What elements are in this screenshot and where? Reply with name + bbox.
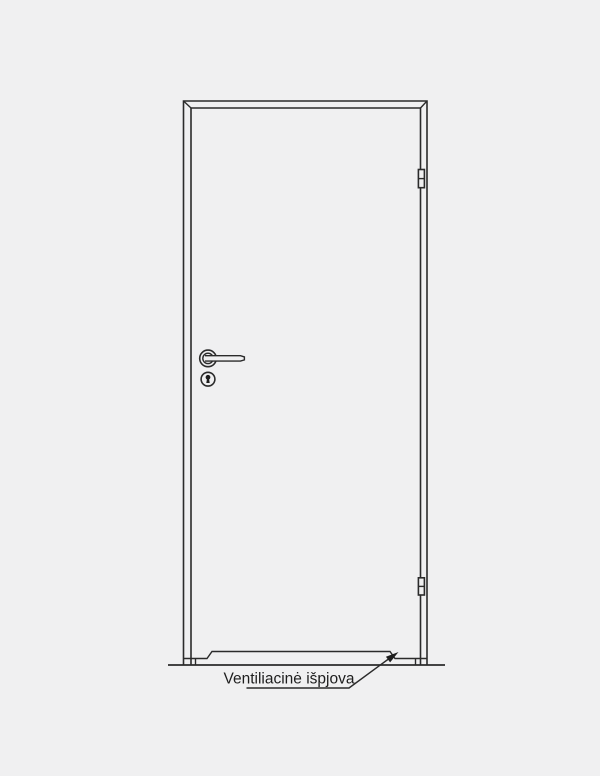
door-frame-inner-line bbox=[191, 108, 421, 665]
door-diagram-svg: Ventiliacinė išpjova bbox=[0, 0, 600, 776]
ventilation-cutout-label: Ventiliacinė išpjova bbox=[224, 671, 355, 688]
top-hinge bbox=[418, 170, 424, 188]
keyhole-stem bbox=[206, 379, 209, 383]
door-frame bbox=[184, 101, 428, 665]
handle-bar-fill bbox=[205, 356, 244, 361]
miter-top-right bbox=[421, 101, 428, 108]
keyhole-escutcheon bbox=[201, 372, 215, 386]
lever-handle bbox=[200, 350, 245, 367]
door-frame-outer-line bbox=[184, 101, 428, 665]
bottom-hinge bbox=[418, 578, 424, 595]
door-diagram: Ventiliacinė išpjova bbox=[0, 0, 600, 776]
miter-top-left bbox=[184, 101, 192, 108]
